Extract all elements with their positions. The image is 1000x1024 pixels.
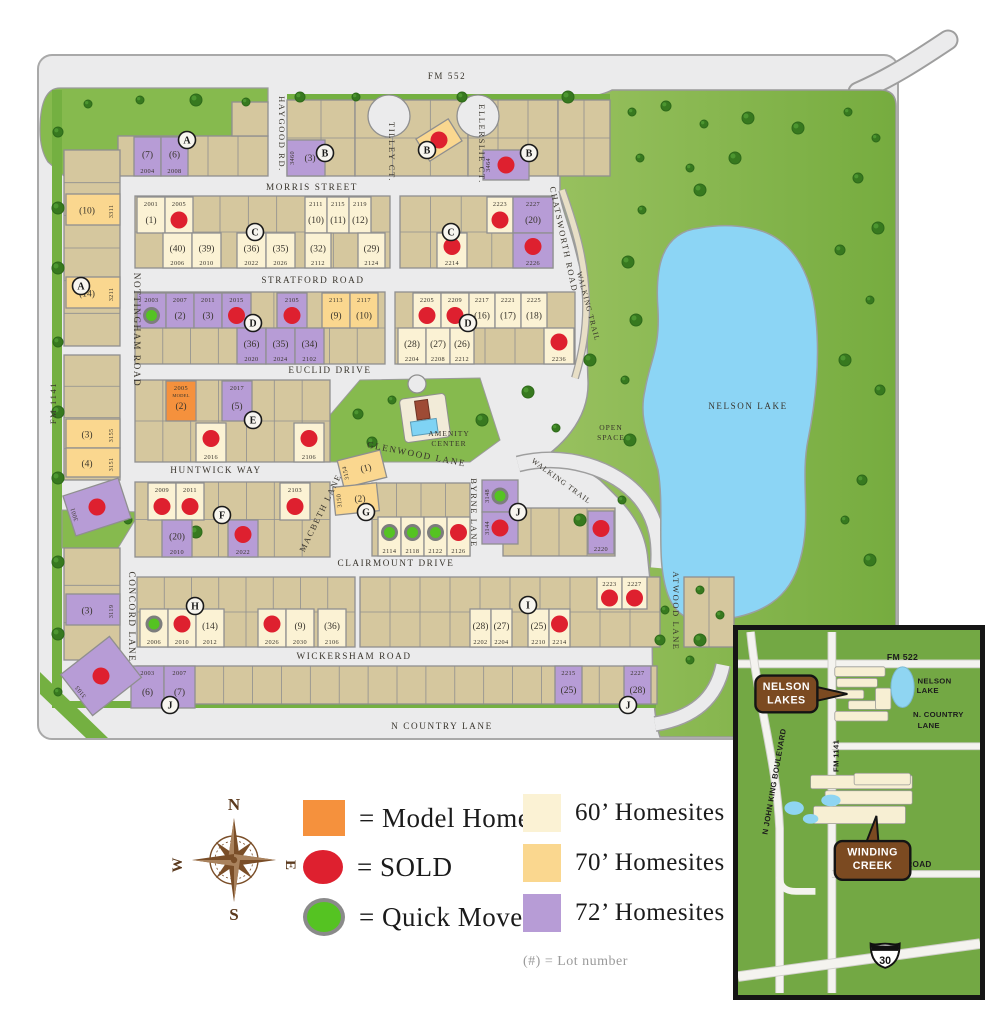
70-homesites-label: 70’ Homesites <box>575 849 725 877</box>
lot-2103[interactable]: 2103 <box>280 483 310 520</box>
lot-count: (11) <box>330 215 345 226</box>
inset-label: FM 522 <box>887 652 918 662</box>
lot-3311[interactable]: 3311(10) <box>66 194 120 225</box>
tree-icon <box>839 354 851 366</box>
lot-number: 3148 <box>484 489 491 503</box>
sold-icon <box>525 238 542 255</box>
compass-rose: NESW <box>168 788 303 938</box>
lot-2212[interactable]: 2212(26) <box>450 328 474 364</box>
callout-text: CREEK <box>853 860 893 872</box>
60-homesites-label: 60’ Homesites <box>575 799 725 827</box>
section-marker-D: D <box>245 315 262 332</box>
tree-icon <box>655 635 665 645</box>
lot-number: 2204 <box>405 356 420 363</box>
lot-2227[interactable]: 2227(20) <box>513 197 553 233</box>
lot-2106[interactable]: 2106(36) <box>318 609 346 647</box>
lot-2006[interactable]: 2006 <box>140 609 168 647</box>
sold-icon <box>287 498 304 515</box>
lot-2026[interactable]: 2026 <box>258 609 286 647</box>
tree-icon <box>353 409 363 419</box>
lot-2204[interactable]: 2204(28) <box>398 328 426 364</box>
lot-number: 2026 <box>273 260 287 267</box>
lot-count: (9) <box>294 621 305 632</box>
lot-number: 2006 <box>147 639 161 646</box>
lot-number: 3119 <box>108 605 115 619</box>
tree-icon <box>694 184 706 196</box>
street-label: TILLEY CT. <box>387 122 397 182</box>
lot-count: (35) <box>273 244 289 255</box>
lot-2114[interactable]: 2114 <box>378 517 401 556</box>
street-label: FM 1141 <box>48 382 58 424</box>
legend-item-sold: = SOLD <box>303 850 556 884</box>
marker-letter: B <box>424 146 431 157</box>
tree-icon <box>875 385 885 395</box>
marker-letter: C <box>447 228 454 239</box>
section-marker-A: A <box>73 278 90 295</box>
tree-icon <box>841 516 849 524</box>
inset-label: N. COUNTRY <box>913 710 964 719</box>
sold-icon <box>419 307 436 324</box>
street-label: WICKERSHAM ROAD <box>296 651 411 661</box>
inset-label: LAKE <box>917 686 939 695</box>
quick-move-in-icon <box>429 526 443 540</box>
lot-number: 2215 <box>561 670 575 677</box>
lot-count: (20) <box>169 532 185 543</box>
legend-item-70-homesites: 70’ Homesites <box>523 844 725 882</box>
tree-icon <box>52 262 64 274</box>
highway-number: 30 <box>879 955 891 967</box>
lot-2113[interactable]: 2113(9) <box>322 293 350 328</box>
tree-icon <box>866 296 874 304</box>
lot-number: 3150 <box>335 493 343 507</box>
inset-label: LANE <box>918 721 940 730</box>
lot-number: 2223 <box>493 201 507 208</box>
lot-count: (18) <box>526 311 542 322</box>
lot-3119[interactable]: 3119(3) <box>66 594 120 625</box>
tree-icon <box>352 93 360 101</box>
lot-number: 2105 <box>285 297 299 304</box>
street-label: HUNTWICK WAY <box>170 465 261 475</box>
lot-2012[interactable]: 2012(14) <box>196 609 224 647</box>
legend-item-72-homesites: 72’ Homesites <box>523 894 725 932</box>
lot-number: 2010 <box>170 549 184 556</box>
marker-letter: G <box>362 508 370 519</box>
street-label: AMENITY <box>428 429 470 438</box>
legend-homesite-rows: 60’ Homesites70’ Homesites72’ Homesites <box>523 794 725 932</box>
inset-label: FM 1141 <box>832 739 841 772</box>
sold-icon <box>551 616 568 633</box>
tree-icon <box>457 92 467 102</box>
lot-number: 2113 <box>329 297 343 304</box>
nelson-lakes-site-plan: 2004(7)2008(6)3460(3)340834642001(1)2005… <box>0 0 1000 1024</box>
section-marker-H: H <box>187 598 204 615</box>
legend-item-quick-move-in: = Quick Move-In <box>303 898 556 936</box>
lot-count: (6) <box>142 687 153 698</box>
lot-2024[interactable]: 2024(35) <box>266 328 295 364</box>
marker-letter: D <box>464 319 471 330</box>
street-label: N COUNTRY LANE <box>391 721 493 731</box>
lot-2226[interactable]: 2226 <box>513 233 553 268</box>
lot-2236[interactable]: 2236 <box>544 328 574 364</box>
lot-count: (10) <box>79 206 95 217</box>
lot-2020[interactable]: 2020(36) <box>237 328 266 364</box>
street-label: MORRIS STREET <box>266 182 358 192</box>
street-label: OPEN <box>599 423 623 432</box>
lot-count: (27) <box>494 621 510 632</box>
marker-letter: D <box>249 319 256 330</box>
section-marker-J: J <box>620 697 637 714</box>
lot-2102[interactable]: 2102(34) <box>295 328 324 364</box>
lot-2205[interactable]: 2205 <box>413 293 441 328</box>
marker-letter: E <box>250 416 257 427</box>
model-home-swatch <box>303 800 345 836</box>
tree-icon <box>190 94 202 106</box>
tree-icon <box>686 164 694 172</box>
legend-item-model-home: = Model Home <box>303 800 556 836</box>
street-label: HAYGOOD RD. <box>277 96 287 172</box>
lot-number: 2221 <box>501 297 515 304</box>
lot-count: (26) <box>454 339 470 350</box>
lot-number: 2209 <box>448 297 462 304</box>
tree-icon <box>618 496 626 504</box>
tree-icon <box>242 98 250 106</box>
tree-icon <box>872 134 880 142</box>
section-marker-C: C <box>247 224 264 241</box>
tree-icon <box>624 434 636 446</box>
lot-number: 3155 <box>108 429 115 443</box>
lot-2118[interactable]: 2118 <box>401 517 424 556</box>
lot-2030[interactable]: 2030(9) <box>286 609 314 647</box>
section-marker-I: I <box>520 597 537 614</box>
tree-icon <box>53 337 63 347</box>
lot-number: 2022 <box>244 260 258 267</box>
lot-number: 2004 <box>140 168 155 175</box>
sold-icon <box>593 520 610 537</box>
marker-letter: J <box>516 508 521 519</box>
lot-number: 2011 <box>183 487 197 494</box>
section-marker-F: F <box>214 507 231 524</box>
lot-2001[interactable]: 2001(1) <box>137 197 165 233</box>
lot-number: 2220 <box>594 546 608 553</box>
lot-count: (36) <box>244 339 260 350</box>
tree-icon <box>84 100 92 108</box>
60-homesites-swatch <box>523 794 561 832</box>
tree-icon <box>552 424 560 432</box>
section-marker-B: B <box>317 145 334 162</box>
lot-2006[interactable]: 2006(40) <box>163 233 192 268</box>
quick-move-in-icon <box>406 526 420 540</box>
lot-number: 2008 <box>167 168 181 175</box>
lot-number: 2005 <box>172 201 186 208</box>
lot-3155[interactable]: 3155(3) <box>66 419 120 448</box>
lot-number: 2236 <box>552 356 566 363</box>
marker-letter: A <box>183 136 191 147</box>
lot-2007[interactable]: 2007(2) <box>166 293 194 328</box>
sold-label: = SOLD <box>357 852 452 883</box>
lot-number: 2009 <box>155 487 169 494</box>
section-marker-J: J <box>162 697 179 714</box>
lot-count: (36) <box>244 244 260 255</box>
lot-2022[interactable]: 2022 <box>228 520 258 557</box>
lot-number: 2015 <box>229 297 243 304</box>
lot-2010[interactable]: 2010(20) <box>162 520 192 557</box>
lot-count: (3) <box>81 606 92 617</box>
lot-number: 3151 <box>108 458 115 472</box>
tree-icon <box>630 314 642 326</box>
lot-2105[interactable]: 2105 <box>277 293 307 328</box>
lot-2210[interactable]: 2210(25) <box>528 609 549 647</box>
lot-number: 2012 <box>203 639 217 646</box>
lot-2005[interactable]: 2005MODEL(2) <box>166 381 196 421</box>
lot-number: 2003 <box>140 670 154 677</box>
lot-number: 2114 <box>383 548 397 555</box>
lot-2112[interactable]: 2112(32) <box>305 233 331 268</box>
lot-number: 3460 <box>289 151 296 165</box>
lot-2223[interactable]: 2223 <box>487 197 513 233</box>
lot-count: (10) <box>308 215 324 226</box>
lot-count: (39) <box>199 244 215 255</box>
sold-icon <box>171 212 188 229</box>
lot-number: 2210 <box>531 639 545 646</box>
lot-number: 2007 <box>172 670 186 677</box>
lot-3151[interactable]: 3151(4) <box>66 448 120 477</box>
tree-icon <box>52 202 64 214</box>
inset-nelson-lake <box>891 667 914 708</box>
lot-2220[interactable]: 2220 <box>588 511 614 554</box>
street-label: NOTTINGHAM ROAD <box>132 273 142 388</box>
marker-letter: B <box>526 149 533 160</box>
lot-number: 2022 <box>236 549 250 556</box>
tree-icon <box>136 96 144 104</box>
tree-icon <box>52 472 64 484</box>
tree-icon <box>54 688 62 696</box>
lot-2106[interactable]: 2106 <box>294 423 324 462</box>
tree-icon <box>584 354 596 366</box>
lot-number: 2111 <box>309 201 323 208</box>
legend-footnote: (#) = Lot number <box>523 954 725 970</box>
legend-homesites: 60’ Homesites70’ Homesites72’ Homesites … <box>523 794 725 970</box>
lot-number: 2106 <box>325 639 339 646</box>
tree-icon <box>562 91 574 103</box>
lot-count: (28) <box>473 621 489 632</box>
tree-icon <box>686 656 694 664</box>
lot-2126[interactable]: 2126 <box>447 517 470 556</box>
lot-number: 2117 <box>357 297 371 304</box>
tree-icon <box>388 396 396 404</box>
sold-icon <box>235 526 252 543</box>
street-label: CENTER <box>431 439 466 448</box>
lot-2009[interactable]: 2009 <box>148 483 176 520</box>
marker-letter: J <box>626 701 631 712</box>
tree-icon <box>52 628 64 640</box>
lot-2016[interactable]: 2016 <box>196 423 226 462</box>
compass-n: N <box>228 795 241 814</box>
inset-map-canvas: FM 522NELSONLAKEN. COUNTRYLANECLEM ROADF… <box>738 630 980 995</box>
amenity-building <box>415 399 431 420</box>
lot-2215[interactable]: 2215(25) <box>555 666 582 704</box>
lot-count: (25) <box>531 621 547 632</box>
sold-icon <box>601 590 618 607</box>
lot-number: 2122 <box>428 548 442 555</box>
lot-number: 2001 <box>144 201 158 208</box>
lot-number: 2017 <box>230 385 244 392</box>
lot-count: (3) <box>304 153 315 164</box>
lot-count: (40) <box>170 244 186 255</box>
compass-e: E <box>282 860 298 870</box>
lot-number: 2007 <box>173 297 187 304</box>
lot-number: 2006 <box>170 260 184 267</box>
tree-icon <box>716 611 724 619</box>
lot-number: 3211 <box>108 288 115 302</box>
street-label: SPACE <box>597 433 625 442</box>
lot-2124[interactable]: 2124(29) <box>358 233 385 268</box>
section-marker-B: B <box>419 142 436 159</box>
tree-icon <box>53 127 63 137</box>
tree-icon <box>636 154 644 162</box>
lot-2111[interactable]: 2111(10) <box>305 197 327 233</box>
lot-count: (9) <box>330 311 341 322</box>
lot-2208[interactable]: 2208(27) <box>426 328 450 364</box>
lot-2227[interactable]: 2227 <box>622 577 647 609</box>
lot-number: 2112 <box>311 260 325 267</box>
lot-count: (17) <box>500 311 516 322</box>
compass-graphic: NESW <box>170 795 298 924</box>
street-label: BYRNE LANE <box>469 478 479 548</box>
tree-icon <box>729 152 741 164</box>
lot-count: (10) <box>356 311 372 322</box>
lot-2122[interactable]: 2122 <box>424 517 447 556</box>
lot-2204[interactable]: 2204(27) <box>491 609 512 647</box>
lot-number: 2205 <box>420 297 434 304</box>
section-marker-E: E <box>245 412 262 429</box>
lot-number: 2227 <box>627 581 641 588</box>
lot-2202[interactable]: 2202(28) <box>470 609 491 647</box>
lot-2225[interactable]: 2225(18) <box>521 293 547 328</box>
sold-icon <box>264 616 281 633</box>
quick-move-in-icon <box>383 526 397 540</box>
section-marker-G: G <box>358 504 375 521</box>
lot-number: 2217 <box>475 297 489 304</box>
tree-icon <box>476 414 488 426</box>
tree-icon <box>661 101 671 111</box>
lot-count: (36) <box>324 621 340 632</box>
lot-number: 2016 <box>204 454 218 461</box>
street-label: CONCORD LANE <box>127 572 137 663</box>
sold-icon <box>450 524 467 541</box>
callout-text: NELSON <box>763 681 810 693</box>
legend-item-60-homesites: 60’ Homesites <box>523 794 725 832</box>
lot-2011[interactable]: 2011 <box>176 483 204 520</box>
lot-count: (27) <box>430 339 446 350</box>
lot-2010[interactable]: 2010(39) <box>192 233 221 268</box>
tree-icon <box>628 108 636 116</box>
callout-text: WINDING <box>847 847 898 859</box>
lot-2004[interactable]: 2004(7) <box>134 137 161 176</box>
lot-block <box>232 102 268 136</box>
tree-icon <box>661 606 669 614</box>
street-label: STRATFORD ROAD <box>261 275 364 285</box>
lot-number: 2214 <box>445 260 460 267</box>
callout-text: LAKES <box>767 695 805 707</box>
tree-icon <box>844 108 852 116</box>
lot-count: (3) <box>202 311 213 322</box>
tree-icon <box>622 256 634 268</box>
model-home-label: = Model Home <box>359 803 530 834</box>
tree-icon <box>694 634 706 646</box>
marker-letter: H <box>191 602 199 613</box>
lot-number: 3144 <box>484 521 491 535</box>
section-marker-B: B <box>521 145 538 162</box>
lot-number: 2119 <box>353 201 367 208</box>
lot-2117[interactable]: 2117(10) <box>350 293 378 328</box>
lot-number: 2226 <box>526 260 540 267</box>
sold-icon <box>154 498 171 515</box>
street-label: ATWOOD LANE <box>671 571 681 650</box>
lot-number: 2010 <box>199 260 213 267</box>
lot-2221[interactable]: 2221(17) <box>495 293 521 328</box>
lot-2115[interactable]: 2115(11) <box>327 197 349 233</box>
lot-2214[interactable]: 2214 <box>549 609 570 647</box>
lot-count: (12) <box>352 215 368 226</box>
lot-2223[interactable]: 2223 <box>597 577 622 609</box>
tree-icon <box>295 92 305 102</box>
sold-icon <box>228 307 245 324</box>
sold-icon <box>203 430 220 447</box>
sold-icon <box>284 307 301 324</box>
sold-swatch <box>303 850 343 884</box>
legend-status: = Model Home= SOLD= Quick Move-In <box>303 800 556 936</box>
street-label: EUCLID DRIVE <box>288 365 371 375</box>
lot-2011[interactable]: 2011(3) <box>194 293 222 328</box>
lot-count: (32) <box>310 244 326 255</box>
lot-number: 2102 <box>302 356 316 363</box>
lot-number: 2024 <box>273 356 288 363</box>
lot-count: (28) <box>404 339 420 350</box>
lot-count: (14) <box>202 621 218 632</box>
72-homesites-label: 72’ Homesites <box>575 899 725 927</box>
tree-icon <box>621 376 629 384</box>
marker-letter: B <box>322 149 329 160</box>
street-label: ELLERSLIE CT. <box>477 104 487 184</box>
lot-2026[interactable]: 2026(35) <box>266 233 295 268</box>
sold-icon <box>301 430 318 447</box>
quick-move-in-swatch <box>303 898 345 936</box>
marker-letter: A <box>77 282 85 293</box>
lot-2119[interactable]: 2119(12) <box>349 197 371 233</box>
model-tag: MODEL <box>172 393 189 398</box>
lot-number: 2212 <box>455 356 469 363</box>
lot-number: 2202 <box>473 639 487 646</box>
lot-count: (2) <box>175 401 186 412</box>
street-label: FM 552 <box>428 71 466 81</box>
lot-number: 2208 <box>431 356 445 363</box>
lot-2005[interactable]: 2005 <box>165 197 193 233</box>
lot-count: (6) <box>169 150 180 161</box>
lot-number: 2124 <box>364 260 379 267</box>
lot-count: (29) <box>364 244 380 255</box>
tree-icon <box>835 245 845 255</box>
tree-icon <box>792 122 804 134</box>
lot-number: 2126 <box>451 548 465 555</box>
lot-number: 2115 <box>331 201 345 208</box>
lot-number: 2103 <box>288 487 302 494</box>
lot-count: (7) <box>174 687 185 698</box>
lot-number: 2020 <box>244 356 258 363</box>
lot-number: 3311 <box>108 205 115 219</box>
lot-number: 2005 <box>174 385 188 392</box>
lot-count: (28) <box>630 685 646 696</box>
sold-icon <box>174 616 191 633</box>
